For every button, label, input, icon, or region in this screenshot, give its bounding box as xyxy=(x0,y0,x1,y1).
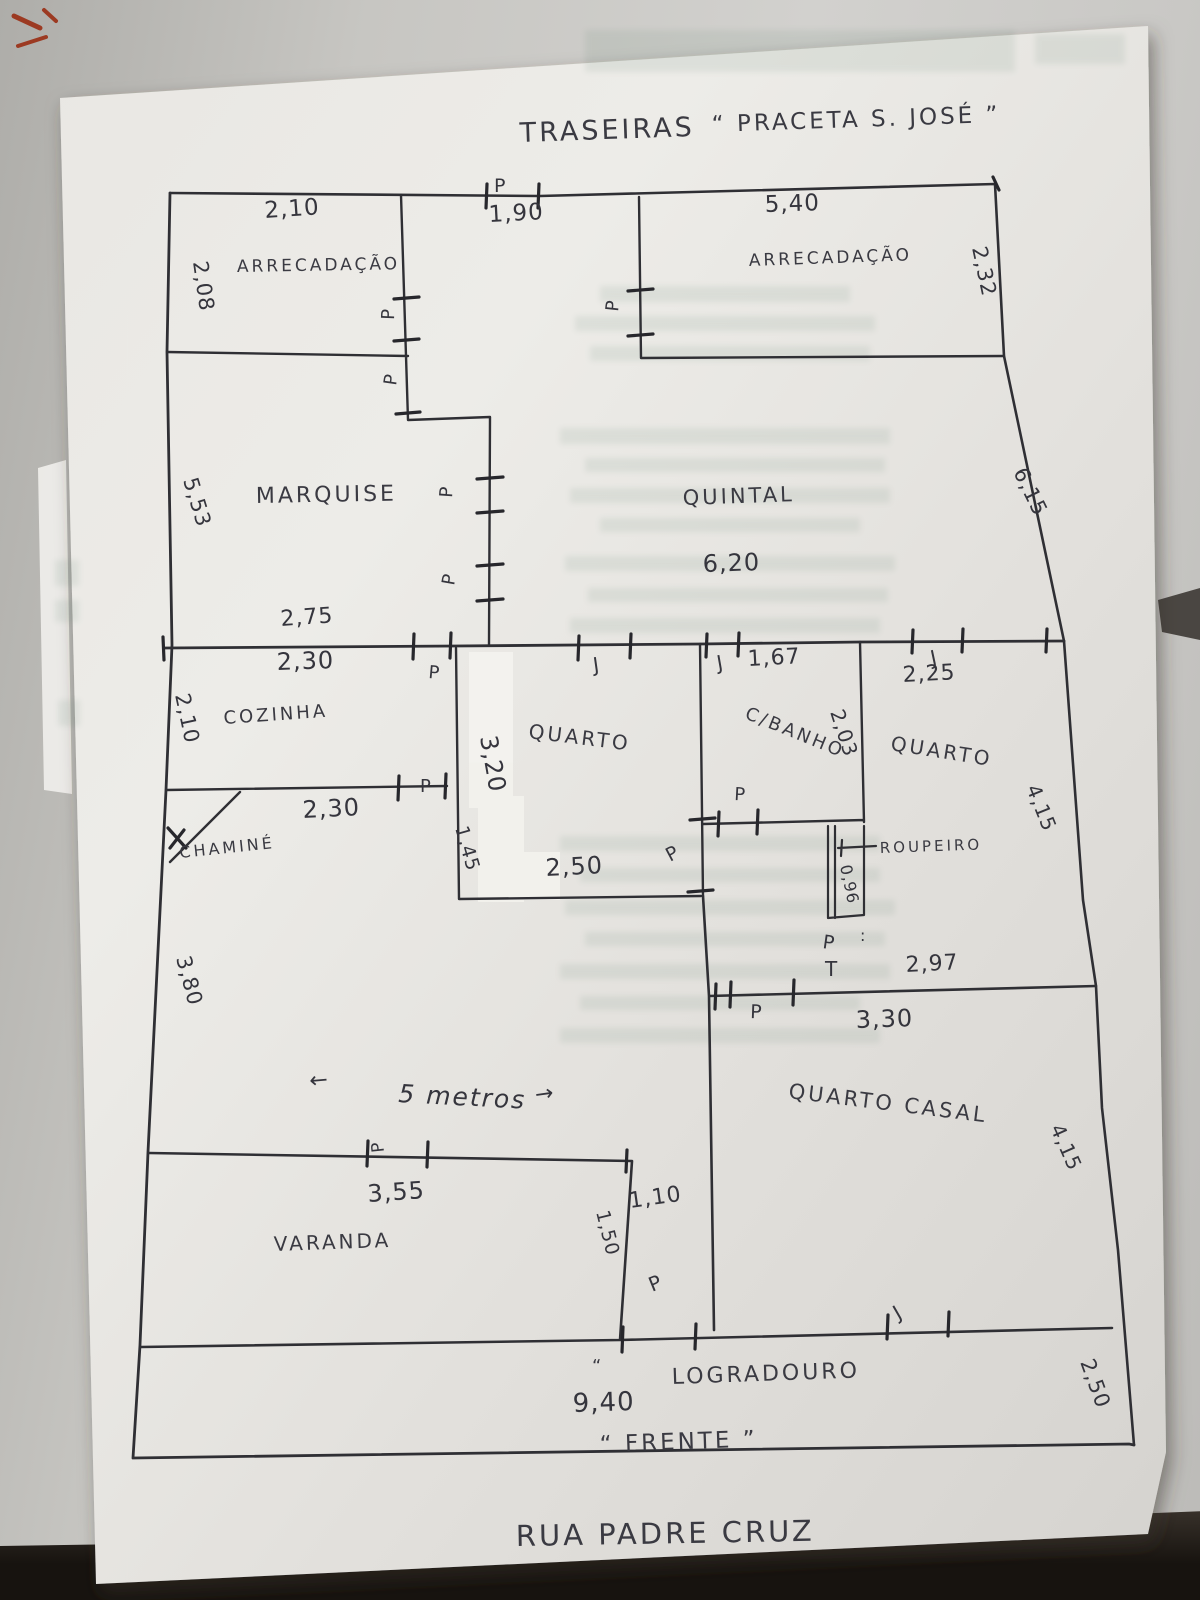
room-storage-left: ARRECADAÇÃO xyxy=(237,252,401,277)
door-mark-storage-right: P xyxy=(602,299,624,313)
dim-balcony-door: 3,55 xyxy=(366,1176,425,1208)
dim-bedroom-right-window: 2,25 xyxy=(902,660,956,688)
under-sheet-edge xyxy=(38,460,72,794)
hall-colon-mark: : xyxy=(860,926,866,945)
tee-mark: T xyxy=(824,957,838,981)
dim-storage-right-width: 5,40 xyxy=(764,190,820,218)
front-yard-quote-mark: “ xyxy=(592,1356,604,1377)
label-back-side: TRASEIRAS xyxy=(518,112,695,149)
living-width-arrow-left: ← xyxy=(308,1067,331,1094)
room-marquise: MARQUISE xyxy=(256,482,398,509)
dim-front-width: 9,40 xyxy=(572,1387,635,1419)
door-mark-master: P xyxy=(750,1001,763,1023)
door-mark-kitchen-top: P xyxy=(428,662,442,684)
dim-master-top-a: 2,97 xyxy=(905,950,959,978)
dim-back-door: 1,90 xyxy=(488,199,545,228)
dim-bedroom-center-width: 2,50 xyxy=(545,851,604,882)
living-width-arrow-right: → xyxy=(533,1080,557,1108)
dim-master-top-b: 3,30 xyxy=(855,1004,913,1034)
dim-backyard-width: 6,20 xyxy=(702,548,760,578)
label-front-side: “ FRENTE ” xyxy=(599,1426,758,1457)
dim-kitchen-top: 2,30 xyxy=(276,646,334,676)
door-mark-balcony: P xyxy=(368,1140,389,1153)
dim-bathroom-window: 1,67 xyxy=(747,644,801,672)
dim-storage-left-width: 2,10 xyxy=(264,194,321,224)
door-mark-kitchen-bottom: P xyxy=(420,776,432,797)
door-mark-back: P xyxy=(494,175,506,197)
room-balcony: VARANDA xyxy=(273,1228,391,1256)
door-mark-bathroom: P xyxy=(734,784,747,806)
photographed-floor-plan: TRASEIRAS “ PRACETA S. JOSÉ ” “ FRENTE ”… xyxy=(0,0,1200,1600)
door-mark-storage-left-a: P xyxy=(378,308,399,321)
label-front-street: RUA PADRE CRUZ xyxy=(516,1514,815,1553)
room-backyard: QUINTAL xyxy=(682,482,795,510)
door-mark-marquise-a: P xyxy=(436,485,458,498)
shadow-wedge xyxy=(1158,588,1200,640)
floor-plan-sketch: TRASEIRAS “ PRACETA S. JOSÉ ” “ FRENTE ”… xyxy=(0,0,1200,1600)
red-desk-marks xyxy=(14,10,56,46)
room-wardrobe: ROUPEIRO xyxy=(880,835,983,857)
dim-kitchen-bottom: 2,30 xyxy=(302,793,361,824)
dim-marquise-bottom: 2,75 xyxy=(280,603,335,632)
